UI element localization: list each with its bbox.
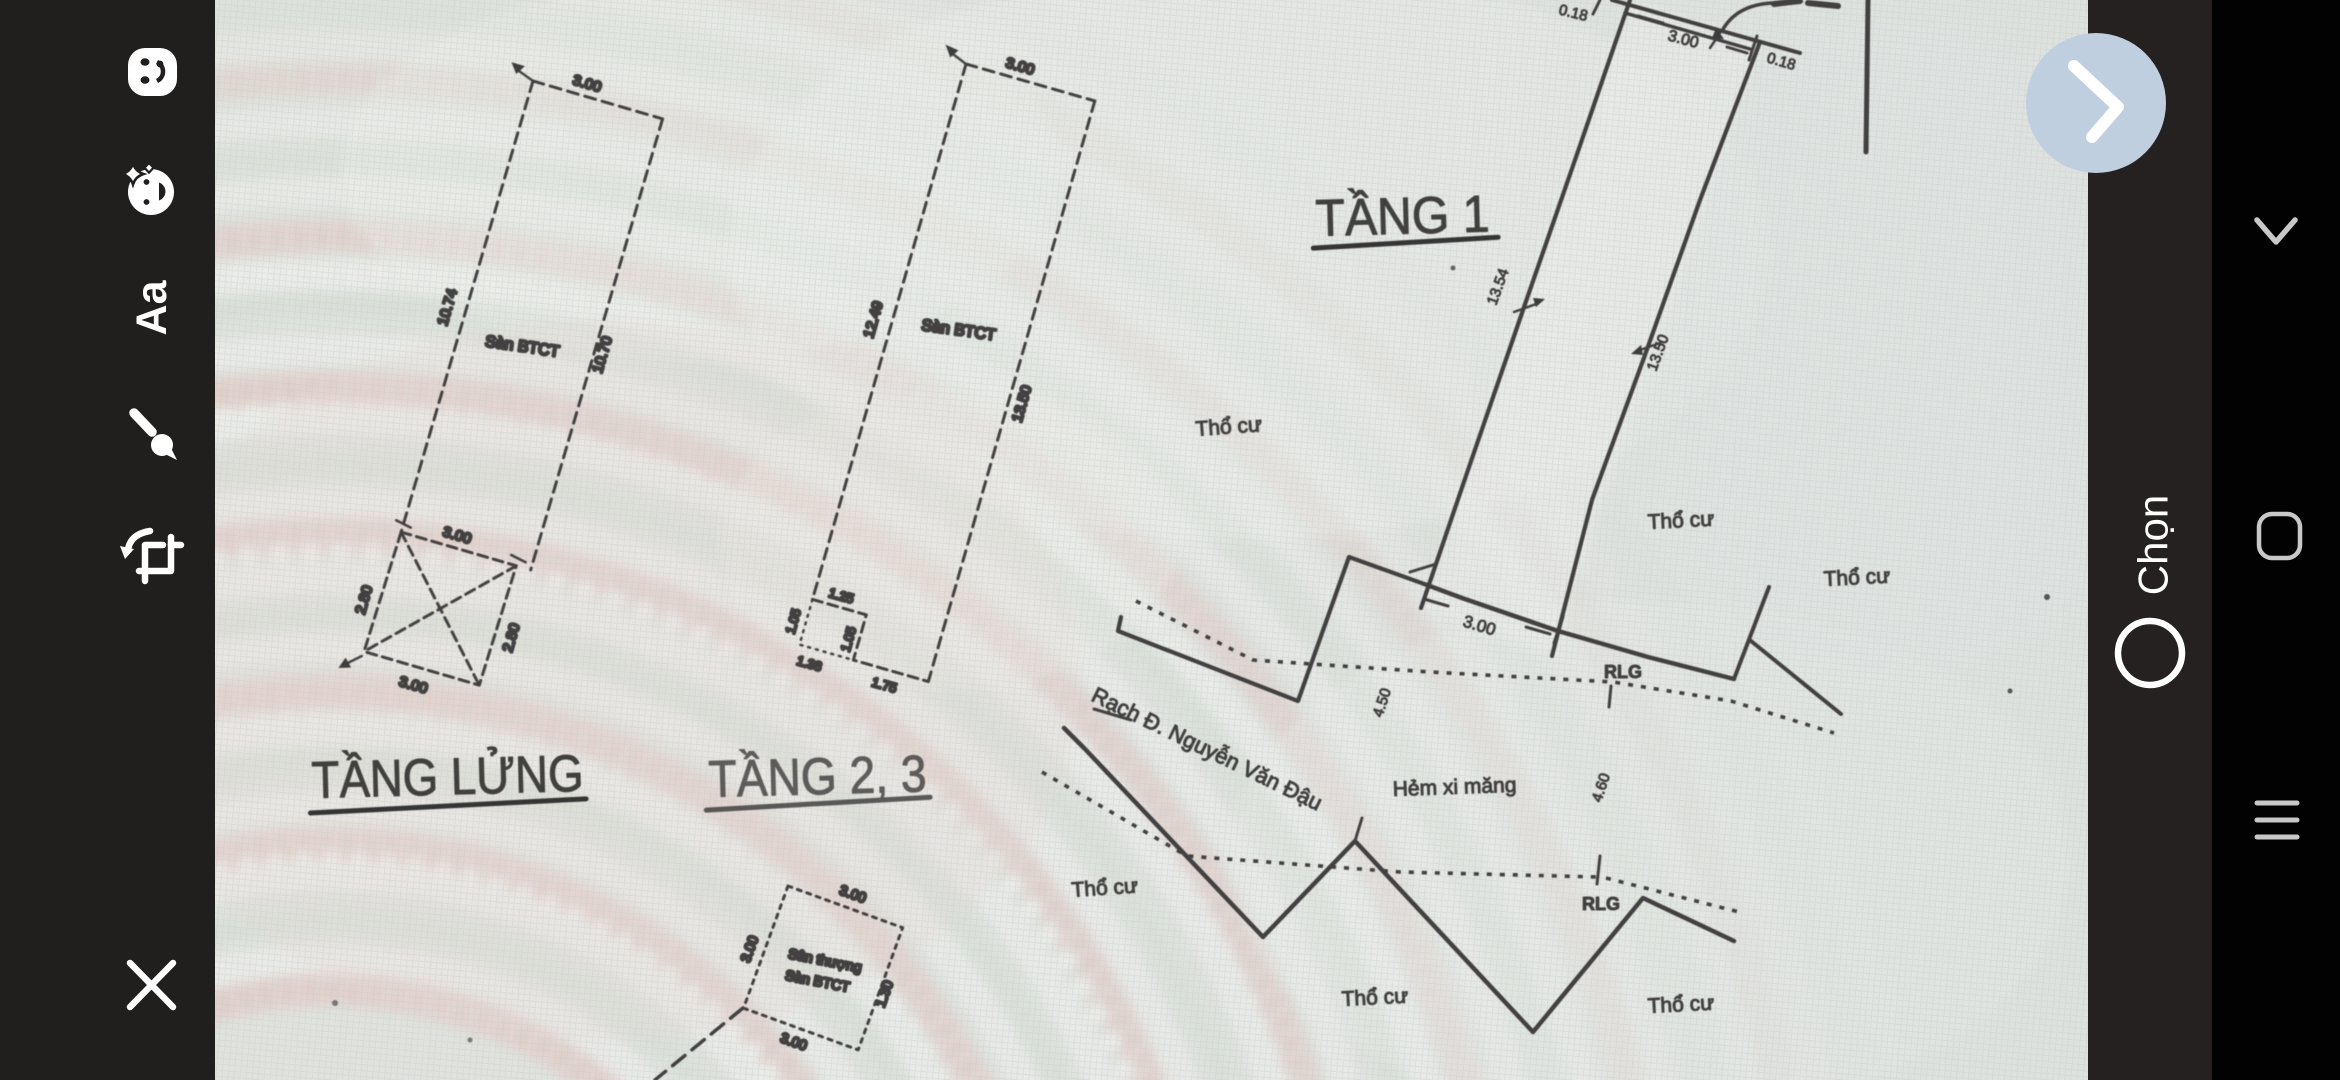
- svg-text:Thổ cư: Thổ cư: [1341, 985, 1409, 1011]
- svg-text:Thổ cư: Thổ cư: [1823, 565, 1891, 591]
- svg-text:Thổ cư: Thổ cư: [1647, 992, 1715, 1018]
- svg-text:Thổ cư: Thổ cư: [1647, 508, 1715, 534]
- svg-text:RLG: RLG: [1604, 662, 1642, 682]
- svg-text:Thổ cư: Thổ cư: [1071, 874, 1139, 902]
- svg-text:Thổ cư: Thổ cư: [1195, 413, 1263, 441]
- svg-text:Hẻm xi măng: Hẻm xi măng: [1392, 774, 1516, 801]
- svg-text:RLG: RLG: [1582, 894, 1620, 914]
- svg-text:Aa: Aa: [128, 279, 176, 335]
- svg-text:Chọn: Chọn: [2130, 495, 2177, 595]
